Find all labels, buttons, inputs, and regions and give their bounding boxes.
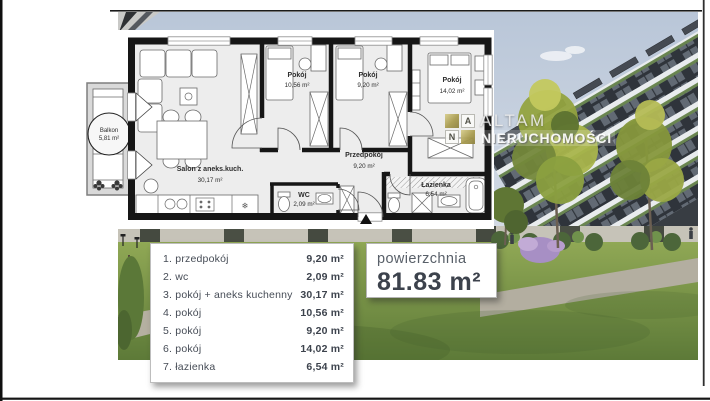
desk-symbol [387,45,402,71]
listing-graphic: Balkon 5,81 m² [0,0,710,401]
fridge-icon: ❄ [242,202,249,211]
legend-row: 2. wc 2,09 m² [151,271,353,283]
total-area-value: 81.83 m² [377,268,486,297]
room-area: 14,02 m² [440,88,465,95]
balcony: Balkon 5,81 m² [87,83,131,195]
legend-row: 6. pokój 14,02 m² [151,343,353,355]
wardrobe-symbol [310,92,328,146]
legend-value: 30,17 m² [300,289,344,301]
kitchen-counter-symbol: ❄ [136,195,258,214]
toilet-symbol [388,193,400,213]
room-area: 6,54 m² [425,191,446,198]
room-area: 9,20 m² [353,163,374,170]
room-name: Przedpokój [345,152,383,159]
logo-letter-n: N [445,130,459,144]
wardrobe-symbol [389,92,407,146]
room-area: 30,17 m² [198,177,223,184]
legend-row: 5. pokój 9,20 m² [151,325,353,337]
shelf-symbol [412,70,420,110]
room-name: Pokój [358,72,377,79]
floor-plan: Balkon 5,81 m² [87,37,492,224]
tv-unit-symbol [180,88,197,105]
toilet-symbol [278,192,290,212]
legend-label: 7. łazienka [163,361,215,373]
logo-gold-square [445,114,459,128]
room-area-balkon: 5,81 m² [99,136,119,142]
legend-label: 6. pokój [163,343,201,355]
room-area: 2,09 m² [293,201,314,208]
room-name: Pokój [442,77,461,84]
room-legend-table: 1. przedpokój 9,20 m² 2. wc 2,09 m² 3. p… [150,243,354,383]
stool-symbol [144,179,158,193]
room-name-balkon: Balkon [100,128,118,134]
bathtub-symbol [466,178,486,213]
logo-gold-square [461,130,475,144]
legend-value: 14,02 m² [300,343,344,355]
legend-row: 7. łazienka 6,54 m² [151,361,353,373]
scene-canvas: Balkon 5,81 m² [0,0,710,401]
balcony-label-circle [88,113,130,155]
wardrobe-symbol [241,54,257,134]
legend-value: 9,20 m² [306,253,344,265]
desk-symbol [311,45,326,71]
legend-row: 3. pokój + aneks kuchenny 30,17 m² [151,289,353,301]
legend-value: 6,54 m² [306,361,344,373]
room-area: 9,20 m² [357,82,378,89]
total-area-label: powierzchnia [377,251,486,267]
legend-label: 2. wc [163,271,189,283]
logo-monogram: A N [445,114,475,144]
room-name: Łazienka [421,182,451,189]
legend-label: 3. pokój + aneks kuchenny [163,289,293,301]
logo-company-subtitle: NIERUCHOMOŚCI [480,130,615,146]
legend-label: 5. pokój [163,325,201,337]
legend-label: 4. pokój [163,307,201,319]
logo-company-name: ALTAM [480,112,615,129]
logo-letter-a: A [461,114,475,128]
room-area: 10,56 m² [285,82,310,89]
washbasin-symbol [316,193,333,204]
legend-row: 1. przedpokój 9,20 m² [151,253,353,265]
total-area-box: powierzchnia 81.83 m² [366,243,497,298]
legend-label: 1. przedpokój [163,253,229,265]
legend-value: 9,20 m² [306,325,344,337]
chair-symbol [375,58,387,70]
room-name: Salon z aneks.kuch. [177,166,244,173]
room-name: Pokój [287,72,306,79]
legend-value: 10,56 m² [300,307,344,319]
chair-symbol [299,58,311,70]
agency-logo: A N ALTAM NIERUCHOMOŚCI [445,112,615,146]
legend-value: 2,09 m² [306,271,344,283]
legend-row: 4. pokój 10,56 m² [151,307,353,319]
room-name: WC [298,192,310,199]
